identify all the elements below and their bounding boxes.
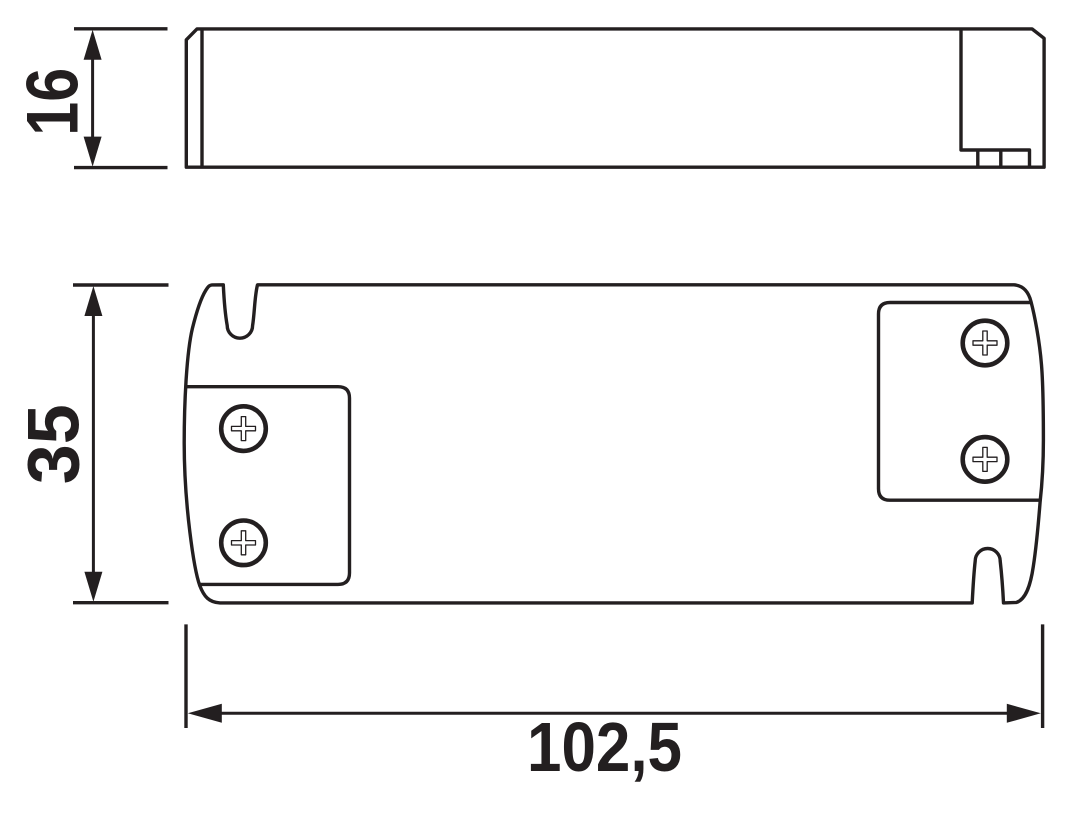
svg-text:102,5: 102,5 (527, 708, 682, 786)
svg-text:16: 16 (13, 68, 94, 136)
svg-text:35: 35 (14, 404, 95, 484)
